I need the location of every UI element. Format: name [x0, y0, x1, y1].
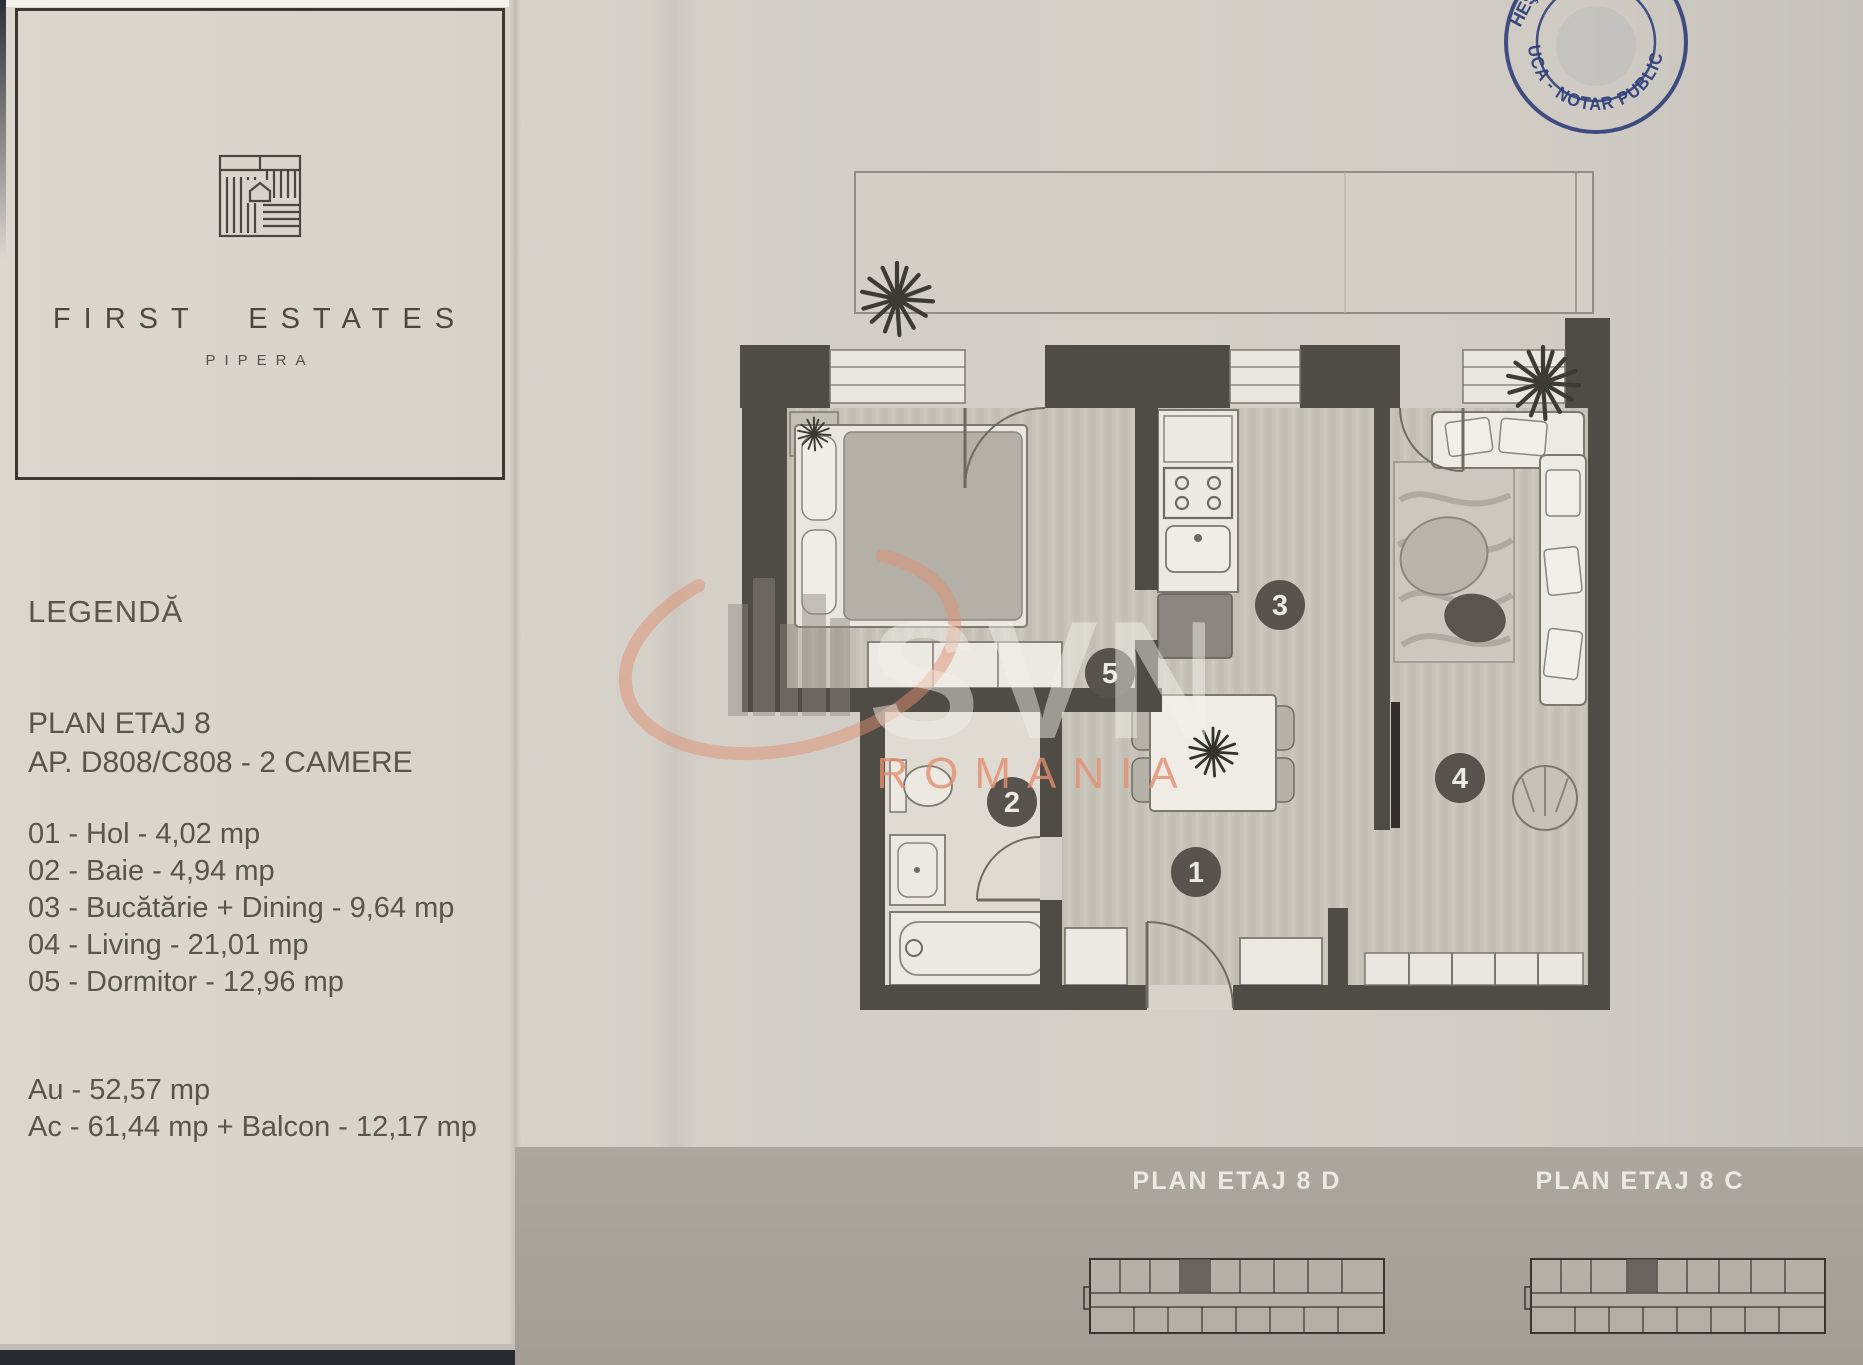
pillow: [802, 436, 836, 520]
room-marker-3: 3: [1255, 580, 1305, 630]
dining-set: [1132, 695, 1294, 811]
wardrobe: [868, 642, 1062, 688]
bathtub: [890, 912, 1055, 985]
living-lower-glazing: [1365, 953, 1583, 985]
brand-subtitle: PIPERA: [205, 352, 314, 369]
bed: [795, 425, 1027, 627]
brand-logo-icon: [217, 153, 303, 239]
pillow: [1544, 546, 1583, 595]
scanned-page: FIRST ESTATES PIPERA LEGENDĂ PLAN ETAJ 8…: [0, 0, 1863, 1365]
kitchen-sink: [1166, 526, 1230, 572]
legend-room-item: 04 - Living - 21,01 mp: [28, 927, 454, 964]
highlighted-unit: [1627, 1259, 1657, 1293]
legend-room-item: 02 - Baie - 4,94 mp: [28, 853, 454, 890]
legend-title: LEGENDĂ: [28, 594, 183, 630]
pillow: [1445, 417, 1493, 457]
svg-text:1: 1: [1188, 857, 1204, 889]
plan-title: PLAN ETAJ 8: [28, 704, 413, 743]
rug: [1390, 462, 1514, 662]
mini-plan-d-thumbnail: [1082, 1243, 1392, 1348]
area-line: Au - 52,57 mp: [28, 1072, 477, 1109]
legend-room-item: 05 - Dormitor - 12,96 mp: [28, 964, 454, 1001]
terrace: [855, 172, 1593, 313]
pillow: [1543, 628, 1583, 680]
legend-room-item: 03 - Bucătărie + Dining - 9,64 mp: [28, 890, 454, 927]
room-marker-4: 4: [1435, 753, 1485, 803]
kitchen-island: [1158, 594, 1232, 658]
svg-text:5: 5: [1102, 658, 1118, 690]
entrance-threshold: [1147, 985, 1233, 1010]
apartment-line: AP. D808/C808 - 2 CAMERE: [28, 743, 413, 782]
table-edge-shadow: [0, 1350, 516, 1365]
area-line: Ac - 61,44 mp + Balcon - 12,17 mp: [28, 1109, 477, 1146]
legend-areas: Au - 52,57 mp Ac - 61,44 mp + Balcon - 1…: [28, 1072, 477, 1146]
svg-text:4: 4: [1452, 763, 1468, 795]
page-edge-shadow: [0, 0, 6, 260]
plan-info: PLAN ETAJ 8 AP. D808/C808 - 2 CAMERE: [28, 704, 413, 782]
pouf: [1513, 766, 1577, 830]
duvet: [844, 432, 1022, 620]
tv: [1391, 702, 1400, 828]
faucet-icon: [1194, 534, 1202, 542]
svg-text:2: 2: [1004, 787, 1020, 819]
mini-plan-c-label: PLAN ETAJ 8 C: [1485, 1167, 1795, 1196]
highlighted-unit: [1180, 1259, 1210, 1293]
page-corner-sliver: [0, 0, 509, 7]
legend-room-list: 01 - Hol - 4,02 mp 02 - Baie - 4,94 mp 0…: [28, 816, 454, 1001]
kitchen-window: [1230, 350, 1300, 403]
floor-plan: 1 2 3 4 5: [700, 150, 1720, 1030]
bedroom-window: [830, 350, 965, 403]
room-marker-1: 1: [1171, 847, 1221, 897]
pillow: [1499, 418, 1548, 456]
room-marker-5: 5: [1085, 648, 1135, 698]
notary-stamp: UCA - NOTAR PUBLIC HEŞTI: [1496, 0, 1696, 140]
stamp-ink-smudge: [1556, 6, 1636, 86]
svg-text:3: 3: [1272, 590, 1288, 622]
room-marker-2: 2: [987, 777, 1037, 827]
kitchen-furniture: [1158, 410, 1238, 658]
bathroom-sink: [890, 835, 945, 905]
mini-plan-d-label: PLAN ETAJ 8 D: [1082, 1167, 1392, 1196]
pillow: [1546, 470, 1580, 516]
pillow: [802, 530, 836, 614]
hall-cabinet: [1240, 938, 1322, 985]
legend-room-item: 01 - Hol - 4,02 mp: [28, 816, 454, 853]
brand-name: FIRST ESTATES: [53, 303, 467, 336]
mini-plan-c-thumbnail: [1523, 1243, 1833, 1348]
hall-cabinet: [1065, 928, 1127, 985]
brand-logo-box: FIRST ESTATES PIPERA: [15, 8, 505, 480]
